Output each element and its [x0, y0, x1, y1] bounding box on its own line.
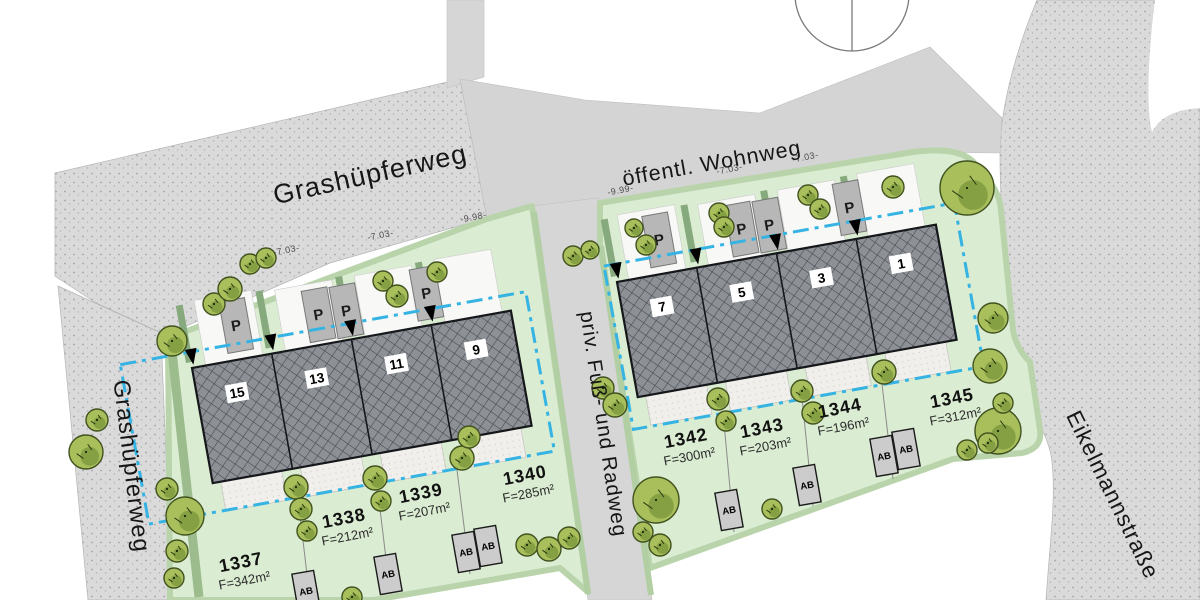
tree-icon: [581, 241, 599, 259]
tree-shade: [648, 493, 673, 518]
tree-trunk-dot: [966, 187, 968, 189]
tree-trunk-dot: [812, 412, 814, 414]
tree-trunk-dot: [295, 486, 297, 488]
tree-trunk-dot: [436, 271, 438, 273]
tree-trunk-dot: [807, 194, 809, 196]
tree-trunk-dot: [819, 208, 821, 210]
tree-trunk-dot: [166, 488, 168, 490]
tree-icon: [978, 433, 998, 453]
tree-shade: [985, 440, 996, 451]
tree-icon: [427, 262, 447, 282]
tree-icon: [957, 440, 977, 460]
tree-icon: [633, 477, 679, 523]
tree-trunk-dot: [572, 255, 574, 257]
tree-shade: [565, 535, 577, 547]
tree-trunk-dot: [989, 365, 991, 367]
tree-trunk-dot: [659, 544, 661, 546]
tree-shade: [964, 447, 975, 458]
tree-shade: [378, 498, 389, 509]
tree-icon: [762, 499, 782, 519]
tree-icon: [636, 235, 656, 255]
tree-trunk-dot: [568, 537, 570, 539]
tree-trunk-dot: [229, 288, 231, 290]
tree-trunk-dot: [614, 404, 616, 406]
tree-icon: [69, 435, 103, 469]
tree-shade: [173, 548, 185, 560]
tree-trunk-dot: [265, 257, 267, 259]
tree-shade: [292, 484, 305, 497]
tree-trunk-dot: [526, 544, 528, 546]
tree-shade: [721, 224, 732, 235]
tree-shade: [434, 269, 445, 280]
tree-trunk-dot: [184, 515, 186, 517]
tree-icon: [363, 466, 387, 490]
tree-trunk-dot: [396, 295, 398, 297]
tree-shade: [163, 486, 175, 498]
tree-trunk-dot: [771, 508, 773, 510]
tree-shade: [458, 455, 471, 468]
tree-icon: [716, 411, 736, 431]
tree-shade: [723, 418, 734, 429]
tree-shade: [587, 247, 597, 257]
tree-icon: [166, 497, 204, 535]
tree-trunk-dot: [892, 186, 894, 188]
tree-shade: [769, 506, 780, 517]
tree-icon: [563, 246, 583, 266]
tree-shade: [545, 546, 558, 559]
tree-trunk-dot: [883, 371, 885, 373]
tree-icon: [633, 522, 653, 542]
tree-trunk-dot: [966, 449, 968, 451]
tree-shade: [465, 434, 477, 446]
tree-trunk-dot: [213, 303, 215, 305]
tree-icon: [284, 475, 308, 499]
tree-shade: [171, 575, 182, 586]
tree-icon: [450, 446, 474, 470]
tree-shade: [643, 242, 654, 253]
tree-icon: [872, 360, 896, 384]
tree-trunk-dot: [548, 548, 550, 550]
tree-trunk-dot: [717, 398, 719, 400]
tree-shade: [523, 542, 535, 554]
tree-trunk-dot: [176, 550, 178, 552]
tree-trunk-dot: [468, 436, 470, 438]
house-number: 13: [308, 370, 326, 388]
tree-trunk-dot: [725, 420, 727, 422]
tree-icon: [342, 587, 362, 600]
tree-trunk-dot: [718, 212, 720, 214]
tree-icon: [993, 393, 1013, 413]
tree-shade: [179, 510, 200, 531]
tree-trunk-dot: [380, 500, 382, 502]
tree-shade: [247, 261, 258, 272]
tree-shade: [93, 417, 105, 429]
tree-trunk-dot: [300, 508, 302, 510]
tree-shade: [631, 225, 641, 235]
tree-icon: [810, 199, 830, 219]
tree-shade: [714, 396, 726, 408]
tree-shade: [988, 314, 1005, 331]
tree-shade: [393, 293, 405, 305]
tree-trunk-dot: [306, 530, 308, 532]
tree-shade: [297, 506, 309, 518]
tree-icon: [940, 161, 994, 215]
tree-trunk-dot: [171, 340, 173, 342]
site-plan: PPPP1513119 PPPP7531 ABABABABABABABAB -7…: [0, 0, 1200, 600]
tree-icon: [714, 217, 734, 237]
tree-shade: [958, 180, 988, 210]
tree-icon: [649, 534, 671, 556]
tree-shade: [889, 184, 901, 196]
tree-shade: [880, 369, 893, 382]
tree-shade: [371, 475, 384, 488]
tree-icon: [625, 219, 643, 237]
tree-trunk-dot: [987, 442, 989, 444]
tree-shade: [984, 361, 1003, 380]
tree-icon: [297, 521, 317, 541]
tree-shade: [263, 255, 274, 266]
tree-trunk-dot: [997, 430, 999, 432]
tree-trunk-dot: [85, 451, 87, 453]
tree-icon: [218, 277, 242, 301]
tree-shade: [167, 337, 184, 354]
tree-trunk-dot: [723, 226, 725, 228]
tree-shade: [1000, 400, 1011, 411]
tree-trunk-dot: [589, 249, 591, 251]
tree-trunk-dot: [173, 577, 175, 579]
tree-trunk-dot: [461, 457, 463, 459]
tree-icon: [290, 498, 312, 520]
tree-icon: [86, 409, 108, 431]
tree-shade: [640, 529, 651, 540]
tree-trunk-dot: [633, 227, 635, 229]
tree-shade: [210, 301, 222, 313]
path-strip-top: [447, 0, 484, 88]
tree-trunk-dot: [96, 419, 98, 421]
tree-icon: [978, 303, 1008, 333]
tree-icon: [973, 349, 1007, 383]
tree-trunk-dot: [1002, 402, 1004, 404]
tree-trunk-dot: [645, 244, 647, 246]
tree-icon: [707, 388, 729, 410]
tree-trunk-dot: [992, 317, 994, 319]
tree-shade: [304, 528, 315, 539]
tree-trunk-dot: [642, 531, 644, 533]
tree-shade: [226, 286, 239, 299]
tree-icon: [164, 568, 184, 588]
tree-icon: [166, 540, 188, 562]
tree-icon: [516, 534, 538, 556]
tree-trunk-dot: [655, 499, 657, 501]
tree-icon: [791, 380, 813, 402]
tree-icon: [537, 537, 561, 561]
tree-icon: [371, 491, 391, 511]
tree-icon: [882, 176, 904, 198]
tree-trunk-dot: [374, 477, 376, 479]
tree-trunk-dot: [249, 263, 251, 265]
tree-shade: [798, 388, 810, 400]
tree-trunk-dot: [382, 280, 384, 282]
tree-icon: [157, 326, 187, 356]
tree-icon: [458, 426, 480, 448]
house-number: 15: [228, 384, 246, 402]
tree-trunk-dot: [351, 596, 353, 598]
tree-icon: [558, 527, 580, 549]
tree-icon: [156, 478, 178, 500]
tree-trunk-dot: [801, 390, 803, 392]
tree-shade: [570, 253, 581, 264]
tree-shade: [817, 206, 828, 217]
tree-shade: [80, 447, 99, 466]
tree-icon: [386, 285, 408, 307]
tree-shade: [656, 542, 668, 554]
